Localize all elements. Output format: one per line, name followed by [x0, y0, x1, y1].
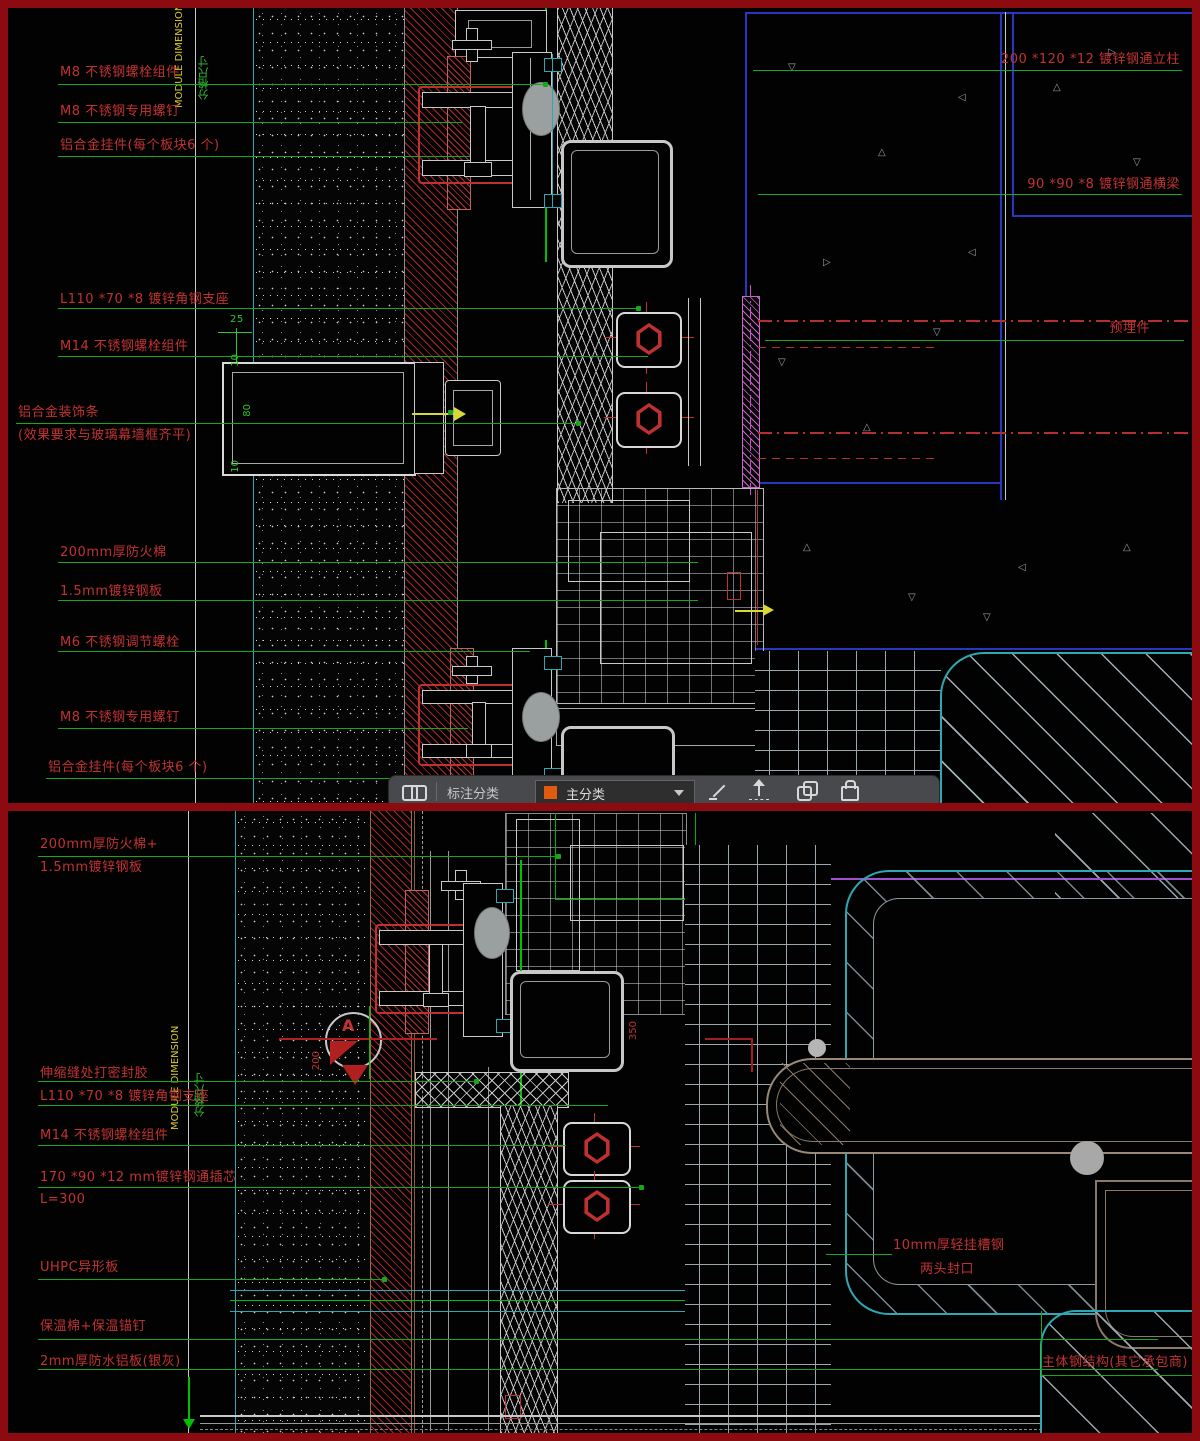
triangle-symbol: △: [1123, 543, 1131, 553]
rounded-concrete: [940, 652, 1192, 803]
label-embed: 预埋件: [1109, 322, 1150, 336]
dim-25: 25: [230, 314, 244, 325]
label-core-length: L=300: [40, 1193, 85, 1207]
triangle-symbol: △: [878, 148, 886, 158]
label-sealant: 伸缩缝处打密封胶: [40, 1067, 148, 1081]
channel-profile: [463, 883, 503, 1037]
leader-dot: [576, 421, 581, 426]
triangle-symbol: ◁: [1018, 563, 1026, 573]
cad-viewport-top[interactable]: MODULE DIMENSION 分格尺寸 ▽ △ ◁ ▷ ▽ △ ▽ ◁ △ …: [8, 8, 1192, 803]
label-m8-bolt: M8 不锈钢螺栓组件: [60, 66, 180, 80]
label-hanger: 铝合金挂件(每个板块6 个): [60, 139, 220, 153]
leader-line: [38, 856, 560, 857]
gray-pin: [808, 1039, 826, 1057]
leader-line: [753, 70, 1182, 71]
leader-line: [58, 308, 640, 309]
concrete-boundary: [745, 482, 1002, 484]
label-m8-screw: M8 不锈钢专用螺钉: [60, 105, 180, 119]
grid-dimension-text: 分格尺寸: [192, 1053, 208, 1117]
concrete-boundary: [1012, 215, 1192, 217]
clip-cyan: [496, 889, 514, 903]
leader-line: [765, 340, 1184, 341]
grid-dimension-text: 分格尺寸: [196, 36, 212, 100]
leader-line: [58, 651, 530, 652]
dim-tick: [218, 332, 252, 333]
module-dimension-text: MODULE DIMENSION: [170, 1030, 181, 1130]
leader-line: [58, 562, 698, 563]
red-corner-line: [705, 1038, 753, 1040]
label-angle-support: L110 *70 *8 镀锌角钢支座: [40, 1090, 209, 1104]
bolt-shaft: [472, 702, 486, 748]
leader-line: [38, 1279, 386, 1280]
section-triangle: [330, 1041, 358, 1065]
dashed-line: [200, 1429, 1042, 1430]
module-dimension-text: MODULE DIMENSION: [174, 12, 185, 108]
triangle-symbol: ▽: [908, 593, 916, 603]
label-uhpc: UHPC异形板: [40, 1261, 119, 1275]
concrete-boundary: [745, 12, 1192, 14]
label-beam: 90 *90 *8 镀锌钢通横梁: [1027, 178, 1180, 192]
leader-dot: [639, 1185, 644, 1190]
leader-dot: [474, 1079, 479, 1084]
annotation-toolbar: 标注分类 主分类: [388, 775, 940, 803]
gray-pin: [1070, 1141, 1104, 1175]
anchor-bolt: [563, 1122, 631, 1176]
leader-dot: [448, 410, 453, 415]
pin-circle: [522, 692, 560, 742]
joint-line: [1005, 12, 1006, 500]
t-bolt-bar: [452, 40, 492, 50]
label-gi-sheet: 1.5mm镀锌钢板: [40, 861, 143, 875]
leader-line: [38, 1187, 643, 1188]
leader-line: [758, 194, 1182, 195]
triangle-symbol: ▷: [823, 258, 831, 268]
red-clip: [727, 572, 741, 600]
pin-circle: [474, 907, 510, 959]
concrete-boundary: [755, 648, 1192, 650]
profile-line: [488, 1067, 489, 1431]
label-column: 200 *120 *12 镀锌钢通立柱: [1001, 53, 1180, 67]
label-m8-screw2: M8 不锈钢专用螺钉: [60, 711, 180, 725]
angle-steel-line: [700, 298, 701, 466]
dim-80: 80: [242, 404, 253, 417]
label-trim-strip: 铝合金装饰条: [18, 406, 99, 420]
anchor-dashdot-line: [758, 432, 1192, 434]
anchor-bolt: [563, 1180, 631, 1234]
triangle-symbol: ▽: [983, 613, 991, 623]
leader-line: [58, 156, 470, 157]
anchor-dash-line: [758, 458, 938, 459]
triangle-symbol: ▽: [933, 328, 941, 338]
leader-line: [38, 1145, 566, 1146]
pin-circle: [522, 82, 560, 136]
category-value: 主分类: [566, 784, 605, 803]
angle-steel-line: [688, 298, 689, 466]
green-outline: [555, 813, 696, 900]
panel-section-inner: [571, 150, 659, 254]
embed-centerline: [750, 285, 751, 495]
triangle-symbol: ▽: [778, 358, 786, 368]
dim-200: 200: [311, 1051, 322, 1070]
dim-arrow-line: [188, 1377, 190, 1421]
triangle-symbol: △: [1053, 83, 1061, 93]
leader-dot: [382, 1277, 387, 1282]
triangle-symbol: △: [803, 543, 811, 553]
sealant-hatch: [415, 1072, 569, 1108]
label-firecotton: 200mm厚防火棉+: [40, 838, 158, 852]
label-channel-steel: 10mm厚轻挂槽钢: [893, 1239, 1004, 1253]
anchor-bolt: [616, 312, 682, 368]
category-color-swatch: [544, 786, 557, 799]
bolt-head: [466, 744, 492, 758]
pipe-line: [230, 1311, 685, 1312]
red-edge-line: [757, 490, 758, 645]
label-m14-bolt: M14 不锈钢螺栓组件: [60, 340, 188, 354]
leader-line: [16, 423, 580, 424]
triangle-symbol: ◁: [968, 248, 976, 258]
rounded-concrete: [1040, 1310, 1192, 1433]
label-angle-support: L110 *70 *8 镀锌角钢支座: [60, 293, 229, 307]
label-waterproof: 2mm厚防水铝板(银灰): [40, 1355, 181, 1369]
label-insulation: 保温棉+保温锚钉: [40, 1320, 146, 1334]
plate-line: [200, 1415, 1040, 1417]
label-firecotton: 200mm厚防火棉: [60, 546, 167, 560]
leader-line: [826, 1254, 892, 1255]
leader-dot: [556, 854, 561, 859]
triangle-symbol: ◁: [958, 93, 966, 103]
leader-line: [38, 1081, 478, 1082]
leader-line: [58, 600, 698, 601]
bolt-shaft: [429, 944, 443, 996]
yellow-arrow: [454, 407, 466, 421]
section-triangle: [342, 1065, 368, 1085]
down-arrow: [183, 1419, 195, 1429]
clip-cyan: [544, 194, 562, 208]
category-dropdown[interactable]: 主分类: [535, 780, 695, 803]
embed-plate: [742, 296, 760, 488]
clip-cyan: [544, 656, 562, 670]
cad-green-line: [230, 1300, 685, 1301]
insulation-spring-column: [500, 1105, 558, 1433]
leader-line: [1041, 1375, 1192, 1376]
cad-green-line: [369, 1006, 370, 1079]
label-m6-bolt: M6 不锈钢调节螺栓: [60, 636, 180, 650]
cad-viewport-bottom[interactable]: MODULE DIMENSION 分格尺寸: [8, 811, 1192, 1433]
callout-letter: A: [342, 1017, 355, 1035]
tube-hatch: [780, 1063, 850, 1145]
leader-line: [58, 356, 648, 357]
plate-line: [200, 1423, 1040, 1424]
leader-line: [58, 84, 545, 85]
triangle-symbol: ▽: [788, 63, 796, 73]
clip-cyan: [544, 58, 562, 72]
label-trim-note: (效果要求与玻璃幕墙框齐平): [18, 429, 191, 443]
red-corner-line: [751, 1038, 753, 1072]
leader-dot: [636, 306, 641, 311]
label-main-structure: 主体钢结构(其它承包商): [1042, 1356, 1188, 1370]
dim-350: 350: [628, 1021, 639, 1040]
triangle-symbol: ▽: [1133, 158, 1141, 168]
arrow-tail: [735, 610, 765, 612]
leader-line: [58, 122, 462, 123]
leader-line: [58, 728, 468, 729]
dim-10b: 10: [230, 460, 241, 473]
anchor-bolt: [616, 392, 682, 448]
anchor-dash-line: [758, 347, 938, 348]
mullion-flange: [414, 362, 444, 474]
bolt-head: [464, 162, 492, 177]
panel-section-inner: [520, 981, 610, 1058]
label-end-cap: 两头封口: [920, 1263, 974, 1277]
module-grid-line: [195, 8, 196, 803]
bolt-shaft: [470, 106, 486, 166]
leader-dot: [543, 82, 548, 87]
label-m14-bolt: M14 不锈钢螺栓组件: [40, 1129, 168, 1143]
label-hanger2: 铝合金挂件(每个板块6 个): [48, 761, 208, 775]
label-gi-sheet: 1.5mm镀锌钢板: [60, 585, 163, 599]
leader-line: [38, 1369, 1158, 1370]
yellow-arrow: [763, 604, 774, 616]
chevron-down-icon: [674, 790, 684, 796]
bolt-head: [423, 993, 449, 1007]
leader-line: [38, 1339, 1158, 1340]
annotation-category-label: 标注分类: [447, 783, 499, 802]
mullion-inner: [232, 372, 404, 464]
label-steel-core: 170 *90 *12 mm镀锌钢通插芯: [40, 1171, 237, 1185]
leader-line: [38, 1105, 608, 1106]
app-window: MODULE DIMENSION 分格尺寸 ▽ △ ◁ ▷ ▽ △ ▽ ◁ △ …: [0, 0, 1200, 1441]
section-line: [279, 1038, 437, 1040]
concrete-boundary: [1012, 12, 1014, 215]
concrete-boundary: [1000, 12, 1002, 500]
t-bolt-bar: [452, 666, 492, 676]
toolbar-divider: [436, 782, 437, 801]
pipe-line: [230, 1290, 685, 1291]
cyan-line: [552, 54, 553, 208]
